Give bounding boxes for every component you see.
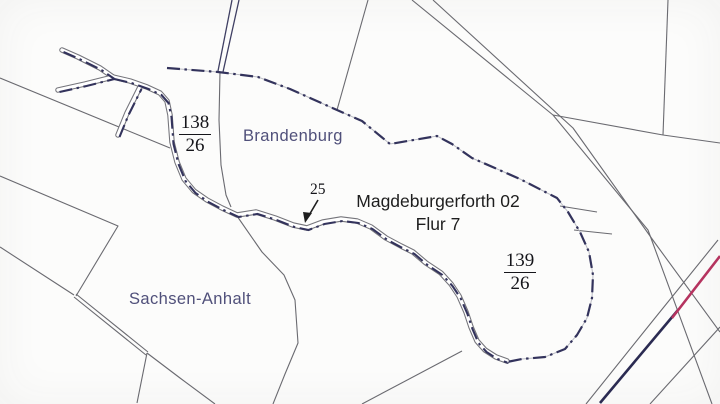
- map-title-line2: Flur 7: [347, 213, 529, 236]
- parcel-line-sa-west: [0, 176, 118, 296]
- parcel-line-branch-southeast: [147, 353, 215, 404]
- parcel-line-138-east: [219, 72, 231, 207]
- cadastral-map: Brandenburg Sachsen-Anhalt Magdeburgerfo…: [0, 0, 720, 404]
- region-label-sachsen-anhalt: Sachsen-Anhalt: [129, 290, 251, 309]
- path-strip-top: [218, 0, 239, 72]
- parcel-line-horizontal: [553, 115, 720, 143]
- parcel-line-corner: [650, 327, 720, 404]
- region-label-brandenburg: Brandenburg: [243, 127, 343, 146]
- parcel-line-vertical: [663, 0, 668, 135]
- map-title-block: Magdeburgerforth 02 Flur 7: [347, 190, 529, 236]
- parcel-139-denominator: 26: [498, 273, 542, 294]
- map-title-line1: Magdeburgerforth 02: [347, 190, 529, 213]
- parcel-line-sa-east: [237, 216, 298, 404]
- arrow-25: [303, 200, 318, 223]
- parcel-label-138-26: 138 26: [174, 112, 216, 156]
- parcel-label-25: 25: [310, 181, 326, 199]
- parcel-line-south-center: [362, 351, 462, 404]
- road-strip-right: [433, 0, 720, 332]
- parcel-line-branch-south: [137, 353, 147, 403]
- parcel-line-southeast-cross: [586, 240, 718, 404]
- parcel-139-numerator: 139: [504, 250, 537, 273]
- railway-line-navy: [600, 310, 678, 403]
- parcel-138-numerator: 138: [179, 112, 212, 135]
- parcel-line-northeast: [337, 0, 368, 110]
- parcel-138-denominator: 26: [174, 135, 216, 156]
- railway-line-red: [672, 256, 720, 318]
- parcel-line-sa-pinch: [0, 247, 74, 295]
- parcel-label-139-26: 139 26: [498, 250, 542, 294]
